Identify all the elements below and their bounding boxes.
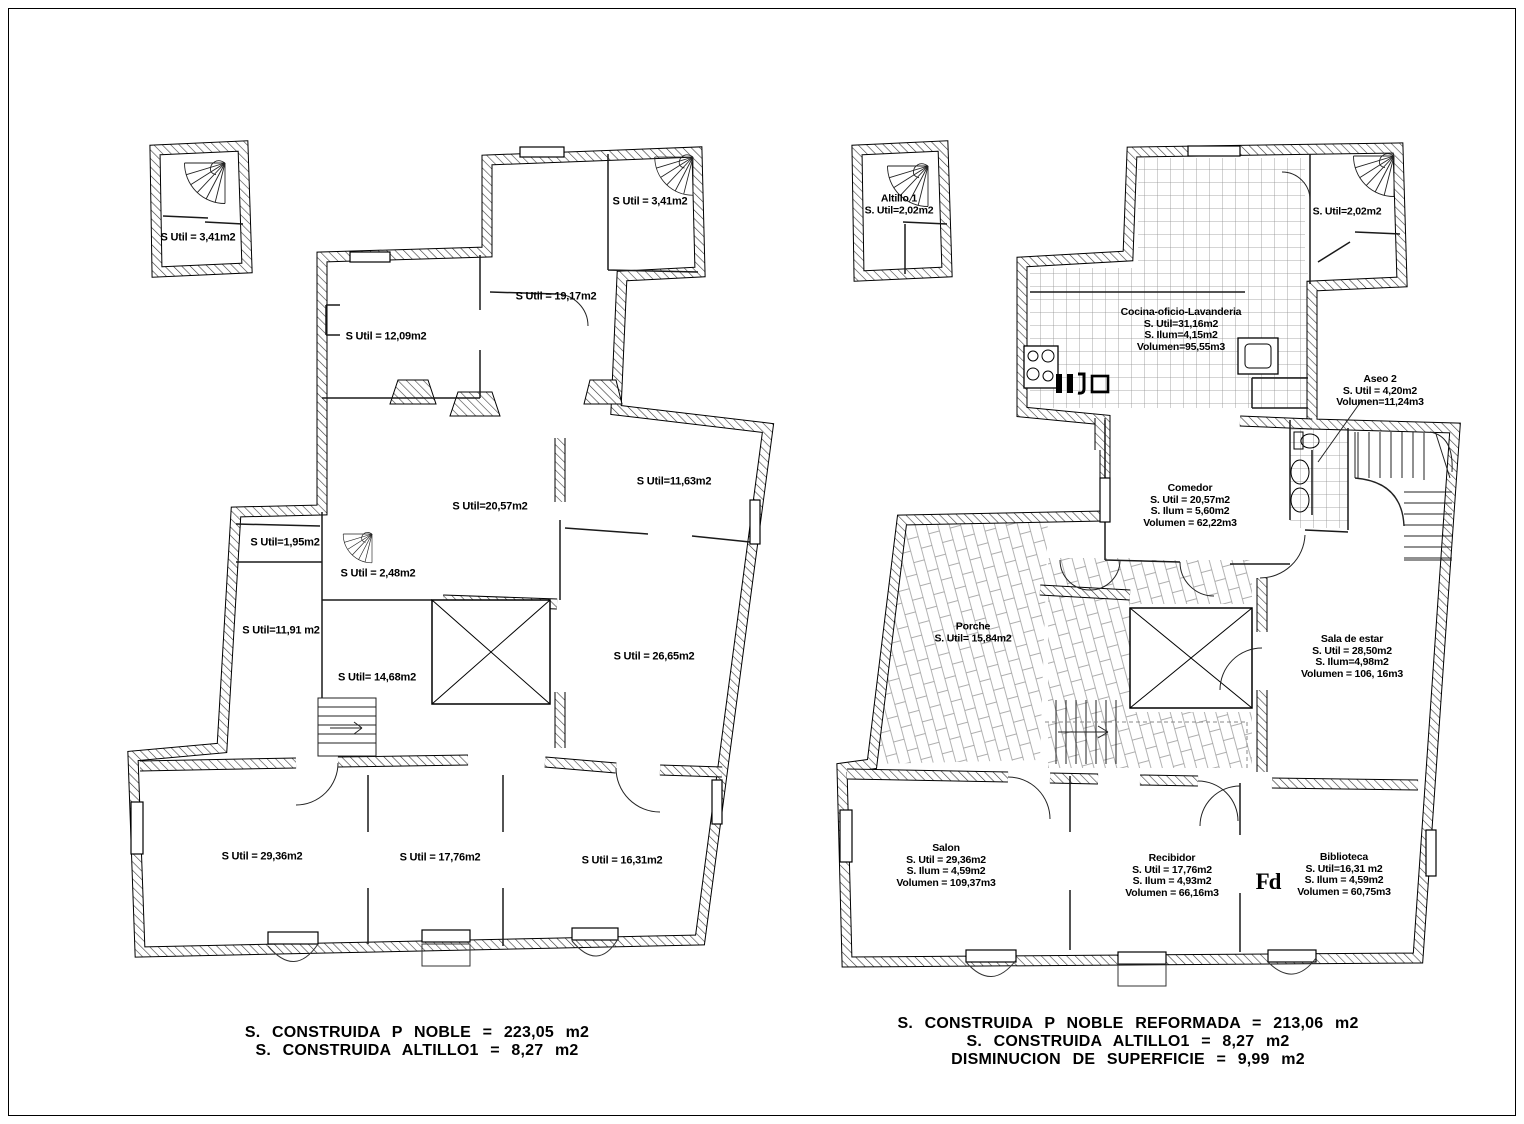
right-kitchen-stove: [1024, 346, 1058, 388]
right-altillo-spiral-stair: [888, 164, 929, 207]
floorplan-sheet: S Util = 3,41m2 S Util = 3,41m2 S Util =…: [0, 0, 1524, 1124]
right-topright-spiral-stair: [1354, 154, 1395, 197]
left-mid-spiral-stair: [343, 532, 372, 562]
left-plan-outer-walls: [133, 146, 768, 952]
left-straight-stair: [318, 698, 376, 756]
left-lightwell-shaft: [432, 600, 550, 704]
left-topright-spiral-stair: [655, 155, 693, 195]
left-plan: [131, 146, 768, 966]
floorplan-graphics: [0, 0, 1524, 1124]
right-curved-stair: [1355, 432, 1452, 560]
right-plan: [840, 146, 1455, 986]
left-altillo-spiral-stair: [185, 161, 226, 204]
right-lightwell-shaft: [1130, 608, 1252, 708]
